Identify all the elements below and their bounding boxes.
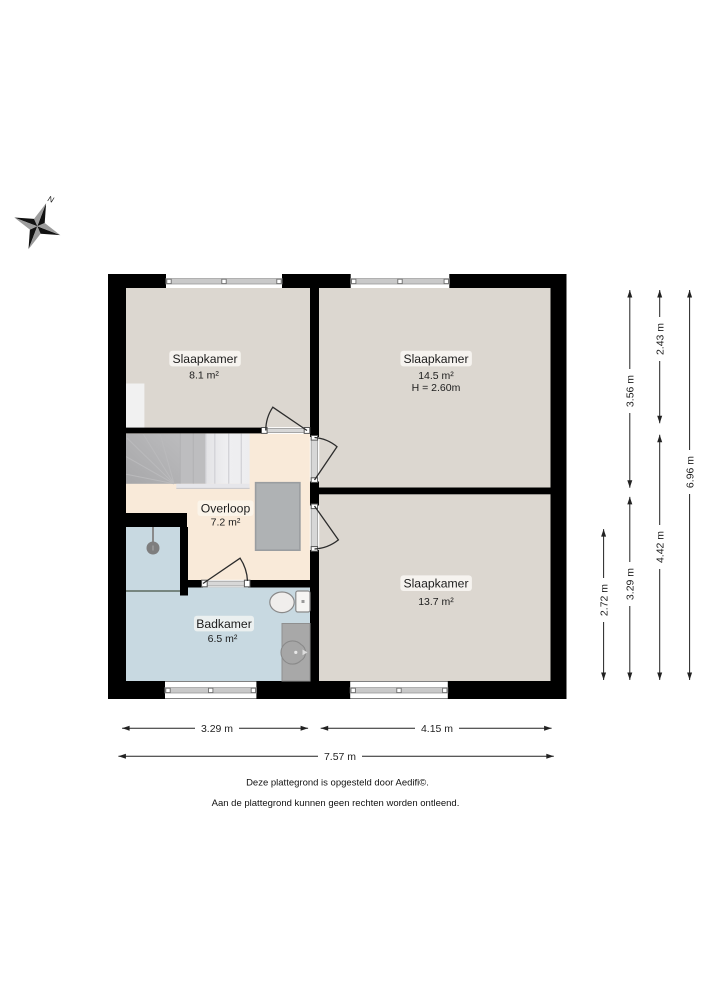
svg-text:H = 2.60m: H = 2.60m: [412, 382, 461, 394]
svg-text:7.2 m²: 7.2 m²: [211, 516, 241, 528]
svg-text:Aan de plattegrond kunnen geen: Aan de plattegrond kunnen geen rechten w…: [212, 798, 460, 809]
svg-text:8.1 m²: 8.1 m²: [189, 370, 219, 382]
svg-text:7.57 m: 7.57 m: [324, 751, 356, 763]
svg-text:3.56 m: 3.56 m: [625, 375, 637, 407]
svg-text:Slaapkamer: Slaapkamer: [403, 352, 468, 366]
svg-text:6.5 m²: 6.5 m²: [208, 633, 238, 645]
svg-text:4.15 m: 4.15 m: [421, 723, 453, 735]
svg-text:Badkamer: Badkamer: [196, 617, 252, 631]
svg-text:Deze plattegrond is opgesteld: Deze plattegrond is opgesteld door Aedif…: [246, 778, 429, 789]
svg-text:13.7 m²: 13.7 m²: [418, 596, 454, 608]
svg-text:6.96 m: 6.96 m: [684, 456, 696, 488]
svg-text:14.5 m²: 14.5 m²: [418, 370, 454, 382]
svg-text:2.43 m: 2.43 m: [655, 323, 667, 355]
svg-text:Overloop: Overloop: [201, 502, 251, 516]
svg-text:N: N: [46, 194, 55, 205]
svg-text:Slaapkamer: Slaapkamer: [403, 577, 468, 591]
svg-text:3.29 m: 3.29 m: [625, 568, 637, 600]
svg-text:4.42 m: 4.42 m: [655, 531, 667, 563]
svg-text:Slaapkamer: Slaapkamer: [172, 352, 237, 366]
svg-text:2.72 m: 2.72 m: [598, 584, 610, 616]
svg-text:3.29 m: 3.29 m: [201, 723, 233, 735]
